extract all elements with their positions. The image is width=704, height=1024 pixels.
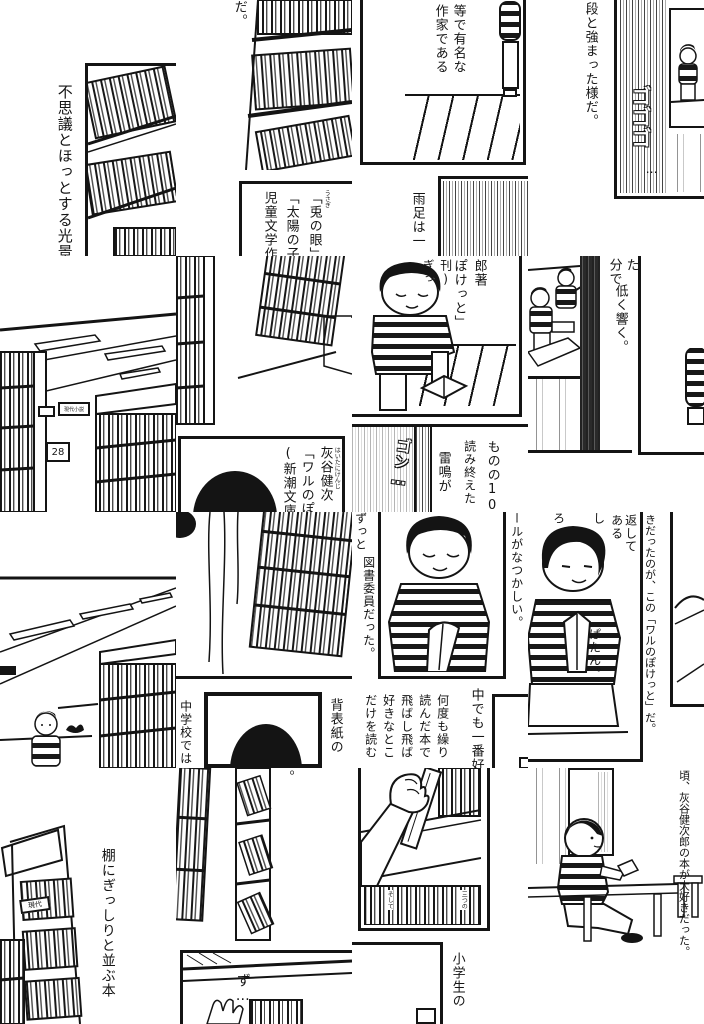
tile-10: 中学校では 背表紙の: [176, 512, 352, 768]
caption-returned-1: 返して: [624, 514, 637, 553]
tile-5: 現代小説 28: [0, 256, 176, 512]
sfx-zu: ず…: [235, 973, 250, 1005]
tile-13: 現代 棚にぎっしりと並ぶ本: [0, 768, 176, 1024]
bookshelf-drawing: [176, 768, 296, 944]
tile-2: だ。 うさぎ 「兎の眼」 「太陽の子 児童文学作: [176, 0, 352, 256]
tile-9: [0, 512, 176, 768]
caption-rain-start: 雨足は一: [410, 192, 424, 248]
window: [669, 8, 704, 128]
caption-loved-books: 頃、灰谷健次郎の本が大好きだった。: [678, 770, 690, 982]
author-panel: 等で有名な 作家である: [360, 0, 526, 165]
publisher-name: (新潮文庫: [281, 446, 295, 512]
panel-border: [528, 450, 632, 453]
tile-12: 返して ある し ろ ぱたん。 きだったのが、この「ワルのぽけっと」だ。: [528, 512, 704, 768]
caption-packed-shelves: 棚にぎっしりと並ぶ本: [100, 848, 115, 1024]
caption-read-1: ものの10: [485, 440, 499, 512]
boy-hair-top: [193, 471, 277, 512]
bench-slats: [405, 94, 520, 160]
wood-pole: [414, 427, 432, 512]
sfx-rumble-tail: …: [645, 162, 658, 177]
boy-figure-fragment: [685, 348, 704, 428]
wall-panel: ゴゴゴ …: [614, 0, 704, 199]
spine-title-1: そして: [385, 890, 393, 910]
caption-reread-4: 好きなとこ: [382, 694, 395, 759]
publisher-cont: 刊): [439, 259, 452, 287]
caption-elementary: 小学生の: [450, 952, 464, 1008]
tall-shelf-drawing: [0, 818, 100, 1024]
hair-top: [230, 724, 302, 768]
sfx-creak: ぎっ: [421, 259, 434, 285]
hand-panel: そして 三つの: [358, 768, 490, 931]
manga-collage-page: 不思議とほっとする光景 だ。 うさぎ 「兎の眼」 「太陽の子 児童文学: [0, 0, 704, 1024]
tile-3: 等で有名な 作家である 雨足は一: [352, 0, 528, 256]
book-title-waru: 「ワルのぽ: [299, 446, 313, 512]
author-name-cont: 郎著: [472, 259, 486, 287]
tile-14: 。 ず…: [176, 768, 352, 1024]
caption-zutto: ずっと: [354, 512, 367, 551]
tile-1: 不思議とほっとする光景: [0, 0, 176, 256]
reach-panel: ず…: [180, 950, 352, 1024]
door-panel: [438, 176, 528, 256]
rain-texture: [669, 134, 704, 192]
reading-figure-drawing: [671, 10, 704, 126]
caption-low-echo: 低く響く。: [613, 284, 627, 354]
library-ceiling-drawing: [0, 512, 176, 768]
bookshelf-drawing: [88, 66, 176, 256]
caption-famous-1: 等で有名な: [451, 4, 465, 74]
boy-figure-fragment: [499, 0, 521, 100]
boy-panel: 返して ある し ろ ぱたん。: [528, 512, 643, 762]
sofa-panel: [670, 512, 704, 707]
aisle-figure-drawing: [176, 512, 352, 678]
tile-8: 分で た 低く響く。: [528, 256, 704, 512]
tile-6: はいたにけんじ 灰谷健次 「ワルのぽ (新潮文庫: [176, 256, 352, 512]
panel-border: [440, 942, 443, 1024]
furigana-usagi: うさぎ: [323, 190, 329, 208]
author-name: 灰谷健次: [318, 446, 332, 502]
white-panel: [638, 256, 704, 455]
caption-read-2: 読み終えた: [463, 440, 476, 505]
caption-fragment-shi: し: [592, 512, 605, 525]
caption-favorite-book: きだったのが、この「ワルのぽけっと」だ。: [644, 514, 656, 734]
caption-reread-5: だけを読む: [364, 694, 377, 759]
library-aisle-drawing: [0, 256, 176, 512]
tile-15: そして 三つの 小学生の: [352, 768, 528, 1024]
caption-read-tail: た: [624, 258, 638, 272]
book-title-cont: ぽけっと」: [452, 259, 466, 329]
panel-border: [352, 942, 442, 945]
sfx-rumble: ゴゴゴ: [629, 86, 650, 149]
book-spines: [249, 999, 303, 1024]
caption-panel: はいたにけんじ 灰谷健次 「ワルのぽ (新潮文庫: [178, 436, 345, 512]
window-frame: [580, 256, 600, 450]
caption-fragment-ro: ろ: [552, 512, 565, 525]
bookshelf-drawing: [244, 0, 352, 170]
furigana-haitani: はいたにけんじ: [333, 447, 339, 489]
caption-period: 。: [279, 770, 293, 784]
caption-library-committee: 図書委員だった。: [362, 556, 375, 660]
small-box: [519, 757, 528, 768]
caption-reread-1: 何度も繰り: [436, 694, 449, 759]
caption-reread-3: 飛ばし飛ば: [400, 694, 413, 759]
rain-texture: [528, 379, 580, 450]
caption-famous-2: 作家である: [433, 4, 447, 74]
caption-favorite: 中でも一番好: [469, 688, 483, 768]
bookshelf-panel: [85, 63, 176, 256]
book-title-rabbit-eyes: 「兎の眼」: [307, 191, 321, 256]
sfx-patan: ぱたん。: [588, 628, 601, 680]
portrait-panel: [378, 512, 506, 679]
caption-reread-2: 読んだ本で: [418, 694, 431, 759]
bookshelf-drawing: [176, 256, 352, 434]
tile-7: 郎著 ぽけっと」 刊) ぎっ ゴン… 雷鳴が ものの10 読み終えた: [352, 256, 528, 512]
caption-thunder: 雷鳴が: [436, 451, 450, 493]
corner-panel: [492, 694, 528, 768]
shelf-sign-genre: 現代小説: [58, 402, 90, 416]
caption-book-spine: 背表紙の: [328, 698, 342, 754]
shelf-sign-small: [38, 406, 55, 417]
boy-smiling-figure: [381, 512, 497, 672]
framed-panel: [204, 692, 322, 768]
wood-texture: [443, 181, 528, 256]
caption-seal-nostalgic: ールがなつかしい。: [510, 512, 523, 629]
boy-at-counter-figure: [28, 710, 64, 768]
window-kids-drawing: [528, 256, 580, 376]
caption-middle-school: 中学校では: [179, 700, 192, 765]
bench-panel: [352, 256, 522, 417]
boy-hands-together-figure: [528, 512, 637, 756]
book-title-sun-child: 「太陽の子: [284, 191, 298, 256]
caption-mysterious-sight: 不思議とほっとする光景: [56, 84, 72, 256]
caption-returned-2: ある: [610, 514, 623, 540]
tile-4: 段と強まった様だ。 ゴゴゴ …: [528, 0, 704, 256]
stool-box: [416, 1008, 436, 1024]
spine-title-2: 三つの: [459, 890, 467, 910]
shelf-number-sign: 28: [46, 442, 70, 462]
tile-16: 頃、灰谷健次郎の本が大好きだった。: [528, 768, 704, 1024]
tile-11: ずっと 図書委員だった。 ールがなつかしい。 中でも一番好 何度も繰り 読んだ本…: [352, 512, 528, 768]
caption-rain-stronger: 段と強まった様だ。: [583, 2, 597, 132]
sofa-corner-drawing: [673, 512, 704, 701]
panel-border: [176, 676, 352, 679]
caption-minutes: 分で: [607, 258, 621, 286]
caption-childrens-literature: 児童文学作: [262, 191, 276, 256]
